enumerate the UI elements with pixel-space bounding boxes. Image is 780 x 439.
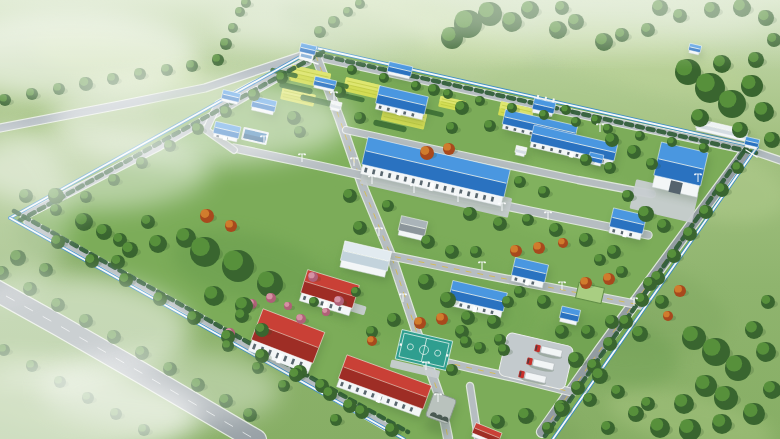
aerial-site-rendering (0, 0, 780, 439)
horizon-haze (0, 0, 780, 70)
industrial-campus-aerial-view (0, 0, 780, 439)
horizon-haze-layer (0, 0, 780, 70)
